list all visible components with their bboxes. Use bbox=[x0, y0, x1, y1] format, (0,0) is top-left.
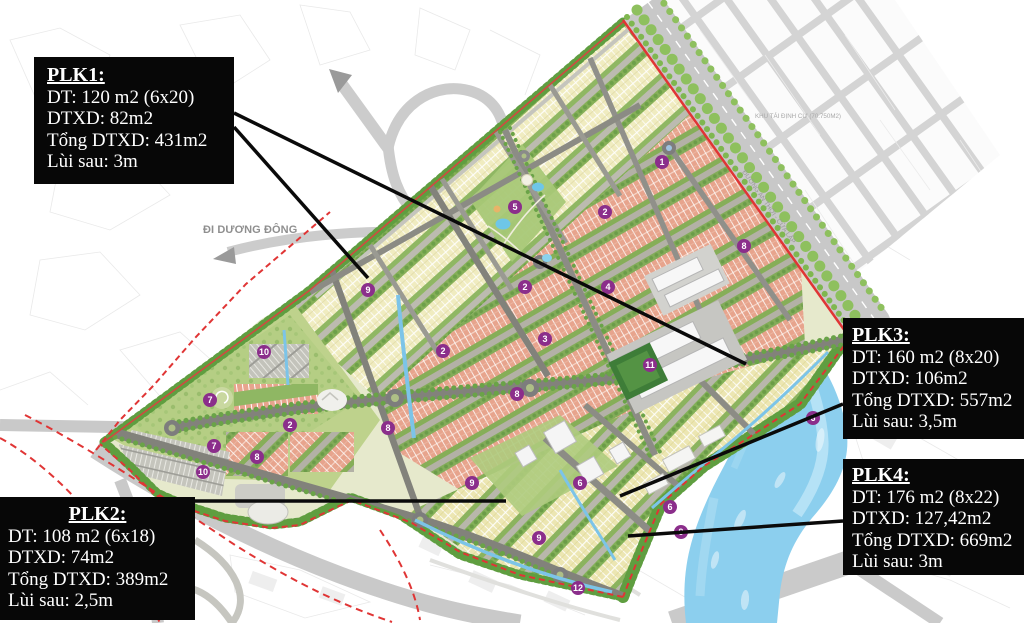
svg-text:10: 10 bbox=[198, 467, 208, 477]
svg-text:9: 9 bbox=[365, 285, 370, 295]
svg-text:4: 4 bbox=[605, 282, 610, 292]
svg-text:2: 2 bbox=[522, 282, 527, 292]
svg-text:2: 2 bbox=[287, 420, 292, 430]
svg-text:5: 5 bbox=[512, 202, 517, 212]
svg-text:1: 1 bbox=[659, 157, 664, 167]
svg-text:KHU TÁI ĐỊNH CƯ (70.750M2): KHU TÁI ĐỊNH CƯ (70.750M2) bbox=[755, 113, 841, 120]
svg-text:2: 2 bbox=[440, 346, 445, 356]
svg-text:8: 8 bbox=[514, 389, 519, 399]
svg-text:7: 7 bbox=[211, 441, 216, 451]
svg-text:2: 2 bbox=[602, 207, 607, 217]
svg-text:ĐI DƯƠNG ĐÔNG: ĐI DƯƠNG ĐÔNG bbox=[203, 223, 297, 236]
svg-text:8: 8 bbox=[385, 423, 390, 433]
svg-text:7: 7 bbox=[207, 395, 212, 405]
svg-text:9: 9 bbox=[536, 533, 541, 543]
svg-text:3: 3 bbox=[542, 334, 547, 344]
svg-text:9: 9 bbox=[469, 478, 474, 488]
svg-text:8: 8 bbox=[741, 241, 746, 251]
svg-text:6: 6 bbox=[667, 502, 672, 512]
svg-text:12: 12 bbox=[573, 583, 583, 593]
svg-text:10: 10 bbox=[259, 347, 269, 357]
svg-text:6: 6 bbox=[577, 478, 582, 488]
svg-text:11: 11 bbox=[645, 360, 655, 370]
svg-text:8: 8 bbox=[254, 452, 259, 462]
